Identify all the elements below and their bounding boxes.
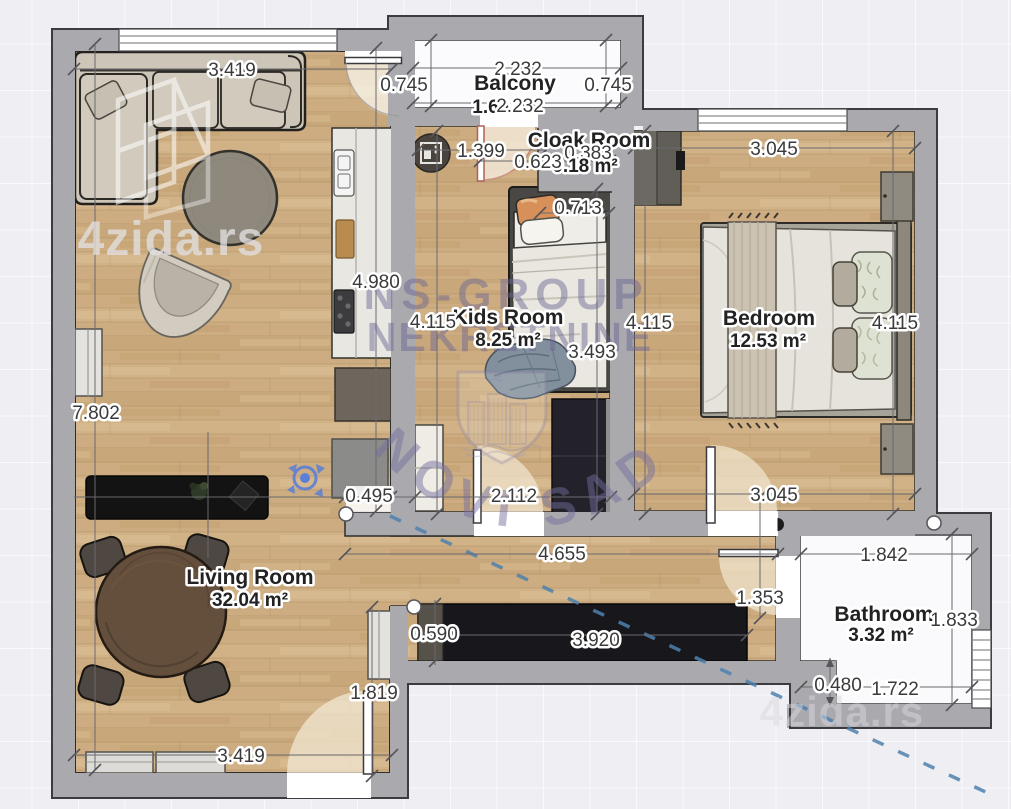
svg-text:Bathroom: Bathroom [834,603,933,626]
svg-text:Balcony: Balcony [474,72,556,95]
svg-text:1.722: 1.722 [871,679,919,700]
svg-text:1.833: 1.833 [930,610,978,631]
svg-text:3.493: 3.493 [568,342,616,363]
svg-text:4.115: 4.115 [410,312,456,333]
svg-text:12.53 m²: 12.53 m² [730,331,806,352]
svg-text:3.419: 3.419 [208,60,256,81]
svg-text:0.713: 0.713 [554,198,602,219]
svg-text:Bedroom: Bedroom [723,307,815,330]
svg-text:1.819: 1.819 [350,683,398,704]
svg-text:0.623: 0.623 [514,152,562,173]
svg-text:0.480: 0.480 [814,675,862,696]
svg-text:3.920: 3.920 [572,630,620,651]
svg-text:3.419: 3.419 [217,746,265,767]
svg-text:0.745: 0.745 [380,75,428,96]
svg-text:1.842: 1.842 [860,545,908,566]
svg-text:Kids Room: Kids Room [453,306,564,329]
svg-text:4.980: 4.980 [352,272,400,293]
svg-text:0.745: 0.745 [584,75,632,96]
svg-text:2.112: 2.112 [491,486,537,507]
svg-text:4zida.rs: 4zida.rs [78,213,265,266]
svg-text:0.590: 0.590 [410,624,458,645]
svg-text:2.232: 2.232 [496,96,544,117]
svg-text:0.495: 0.495 [345,486,393,507]
svg-text:3.045: 3.045 [750,485,798,506]
svg-text:8.25 m²: 8.25 m² [475,330,540,351]
svg-text:Living Room: Living Room [186,566,313,589]
svg-text:1.353: 1.353 [736,588,784,609]
svg-text:7.802: 7.802 [72,403,120,424]
svg-text:32.04 m²: 32.04 m² [212,590,288,611]
svg-text:1.399: 1.399 [457,141,505,162]
svg-text:3.045: 3.045 [750,139,798,160]
svg-text:0.18 m²: 0.18 m² [552,156,617,177]
svg-text:4.115: 4.115 [626,313,672,334]
svg-text:4.655: 4.655 [538,544,586,565]
svg-text:3.32 m²: 3.32 m² [848,625,913,646]
svg-text:4.115: 4.115 [872,313,918,334]
